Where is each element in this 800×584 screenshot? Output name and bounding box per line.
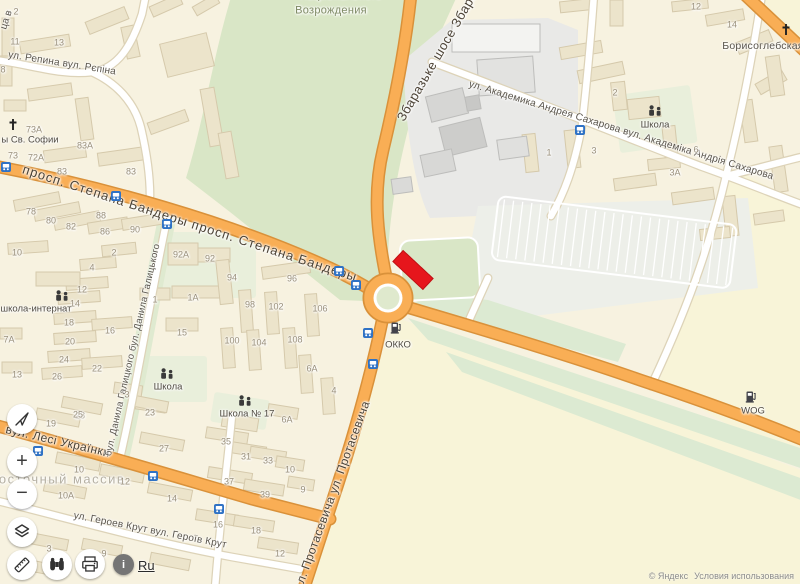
house-number: 12 [275,550,285,559]
house-number: 78 [26,208,36,217]
house-number: 6А [306,365,317,374]
house-number: 73А [26,126,42,135]
house-number: 12 [77,286,87,295]
bus-stop-icon[interactable] [162,216,172,226]
ruler-button[interactable] [7,550,37,580]
poi-label: школа-интернат [1,304,72,314]
house-number: 3А [669,169,680,178]
house-number: 18 [64,319,74,328]
poi-label: Школа [641,120,670,130]
bus-stop-icon[interactable] [111,188,121,198]
map-labels-layer: просп. Степана Бандеры просп. Степана Ба… [0,0,800,584]
house-number: 3 [591,147,596,156]
house-number: 4 [89,264,94,273]
house-number: 13 [12,371,22,380]
street-label: ул. Репина вул. Рєпіна [7,51,116,78]
house-number: 31 [241,453,251,462]
house-number: 37 [224,478,234,487]
house-number: 6А [281,416,292,425]
house-number: 92 [205,255,215,264]
zoom-in-button[interactable]: + [7,447,37,477]
bus-stop-icon[interactable] [363,325,373,335]
street-label: л. Протасевича ул. Протасевича [294,399,371,584]
house-number: 6 [693,146,698,155]
house-number: 33 [263,457,273,466]
house-number: 80 [46,217,56,226]
copyright-text: © Яндекс [649,571,688,581]
geolocate-button[interactable] [7,404,37,434]
terms-link[interactable]: Условия использования [694,571,794,581]
house-number: 20 [65,338,75,347]
street-label: ул. Академика Андрея Сахарова вул. Акаде… [468,80,775,183]
house-number: 83 [57,168,67,177]
house-number: 23 [145,409,155,418]
house-number: 106 [312,305,327,314]
area-label: Национального [299,0,382,2]
house-number: 13 [54,39,64,48]
house-number: 83А [77,142,93,151]
area-label: Возрождения [295,6,367,17]
poi-label: ОККО [385,340,411,350]
house-number: 10 [12,249,22,258]
info-button[interactable]: i [113,554,134,575]
house-number: 10А [58,492,74,501]
house-number: 19 [46,420,56,429]
house-number: 14 [727,21,737,30]
bus-stop-icon[interactable] [214,501,224,511]
house-number: 2 [13,8,18,17]
map-canvas[interactable]: просп. Степана Бандеры просп. Степана Ба… [0,0,800,584]
street-label: Борисоглебская [722,41,800,52]
house-number: 16 [213,521,223,530]
ruler-icon [12,555,32,575]
house-number: 24 [59,356,69,365]
house-number: 1 [546,149,551,158]
house-number: 39 [260,491,270,500]
search-binoculars-button[interactable] [42,550,72,580]
house-number: 11 [10,38,19,47]
language-switcher[interactable]: Ru [138,558,155,573]
house-number: 94 [227,274,237,283]
house-number: 12 [120,478,130,487]
poi-label: Школа № 17 [220,409,275,419]
bus-stop-icon[interactable] [334,263,344,273]
house-number: 14 [167,495,177,504]
layers-button[interactable] [7,517,37,547]
house-number: 100 [224,337,239,346]
house-number: 96 [287,275,297,284]
house-number: 3 [124,391,129,400]
house-number: 2 [612,89,617,98]
fuel-icon[interactable] [391,321,402,339]
house-number: 92А [173,251,189,260]
bus-stop-icon[interactable] [33,443,43,453]
house-number: 12 [691,3,701,12]
bus-stop-icon[interactable] [575,122,585,132]
location-arrow-icon [12,409,32,429]
house-number: 26 [52,373,62,382]
house-number: 2 [111,249,116,258]
plus-icon: + [16,451,28,471]
house-number: 35 [221,438,231,447]
house-number: 16 [105,327,115,336]
house-number: 9 [300,486,305,495]
street-label: Збаразьке шосе Збара [394,0,479,123]
house-number: 104 [251,339,266,348]
house-number: 4 [331,387,336,396]
street-label: ул. Героев Крут вул. Героїв Крут [73,511,228,551]
house-number: 90 [130,226,140,235]
house-number: 1 [152,296,157,305]
house-number: 1А [187,294,198,303]
zoom-out-button[interactable]: − [7,479,37,509]
house-number: 82 [66,223,76,232]
house-number: 83 [126,168,136,177]
house-number: 86 [100,228,110,237]
house-number: 10 [285,466,295,475]
house-number: 18 [251,527,261,536]
house-number: 8 [0,66,5,75]
minus-icon: − [16,483,28,503]
printer-icon [80,554,100,574]
house-number: 27 [159,445,169,454]
house-number: 98 [245,301,255,310]
poi-label: ы Св. Софии [1,135,58,145]
house-number: 108 [287,336,302,345]
house-number: 22 [92,365,102,374]
layers-icon [12,522,32,542]
bus-stop-icon[interactable] [351,277,361,287]
bus-stop-icon[interactable] [368,356,378,366]
house-number: 10 [74,466,84,475]
poi-label: Школа [154,382,183,392]
street-label: бул. Данила Галицкого бул. Данила Галиць… [104,243,162,457]
house-number: 102 [268,303,283,312]
church-icon[interactable] [780,23,792,41]
house-number: 7А [3,336,14,345]
print-button[interactable] [75,549,105,579]
house-number: 25 [73,411,83,420]
binoculars-icon [47,555,67,575]
info-icon: i [122,559,125,571]
bus-stop-icon[interactable] [1,159,11,169]
bus-stop-icon[interactable] [148,468,158,478]
poi-label: WOG [741,406,765,416]
house-number: 88 [96,212,106,221]
attribution: © ЯндексУсловия использования [643,571,794,581]
house-number: 15 [177,329,187,338]
house-number: 72А [28,154,44,163]
